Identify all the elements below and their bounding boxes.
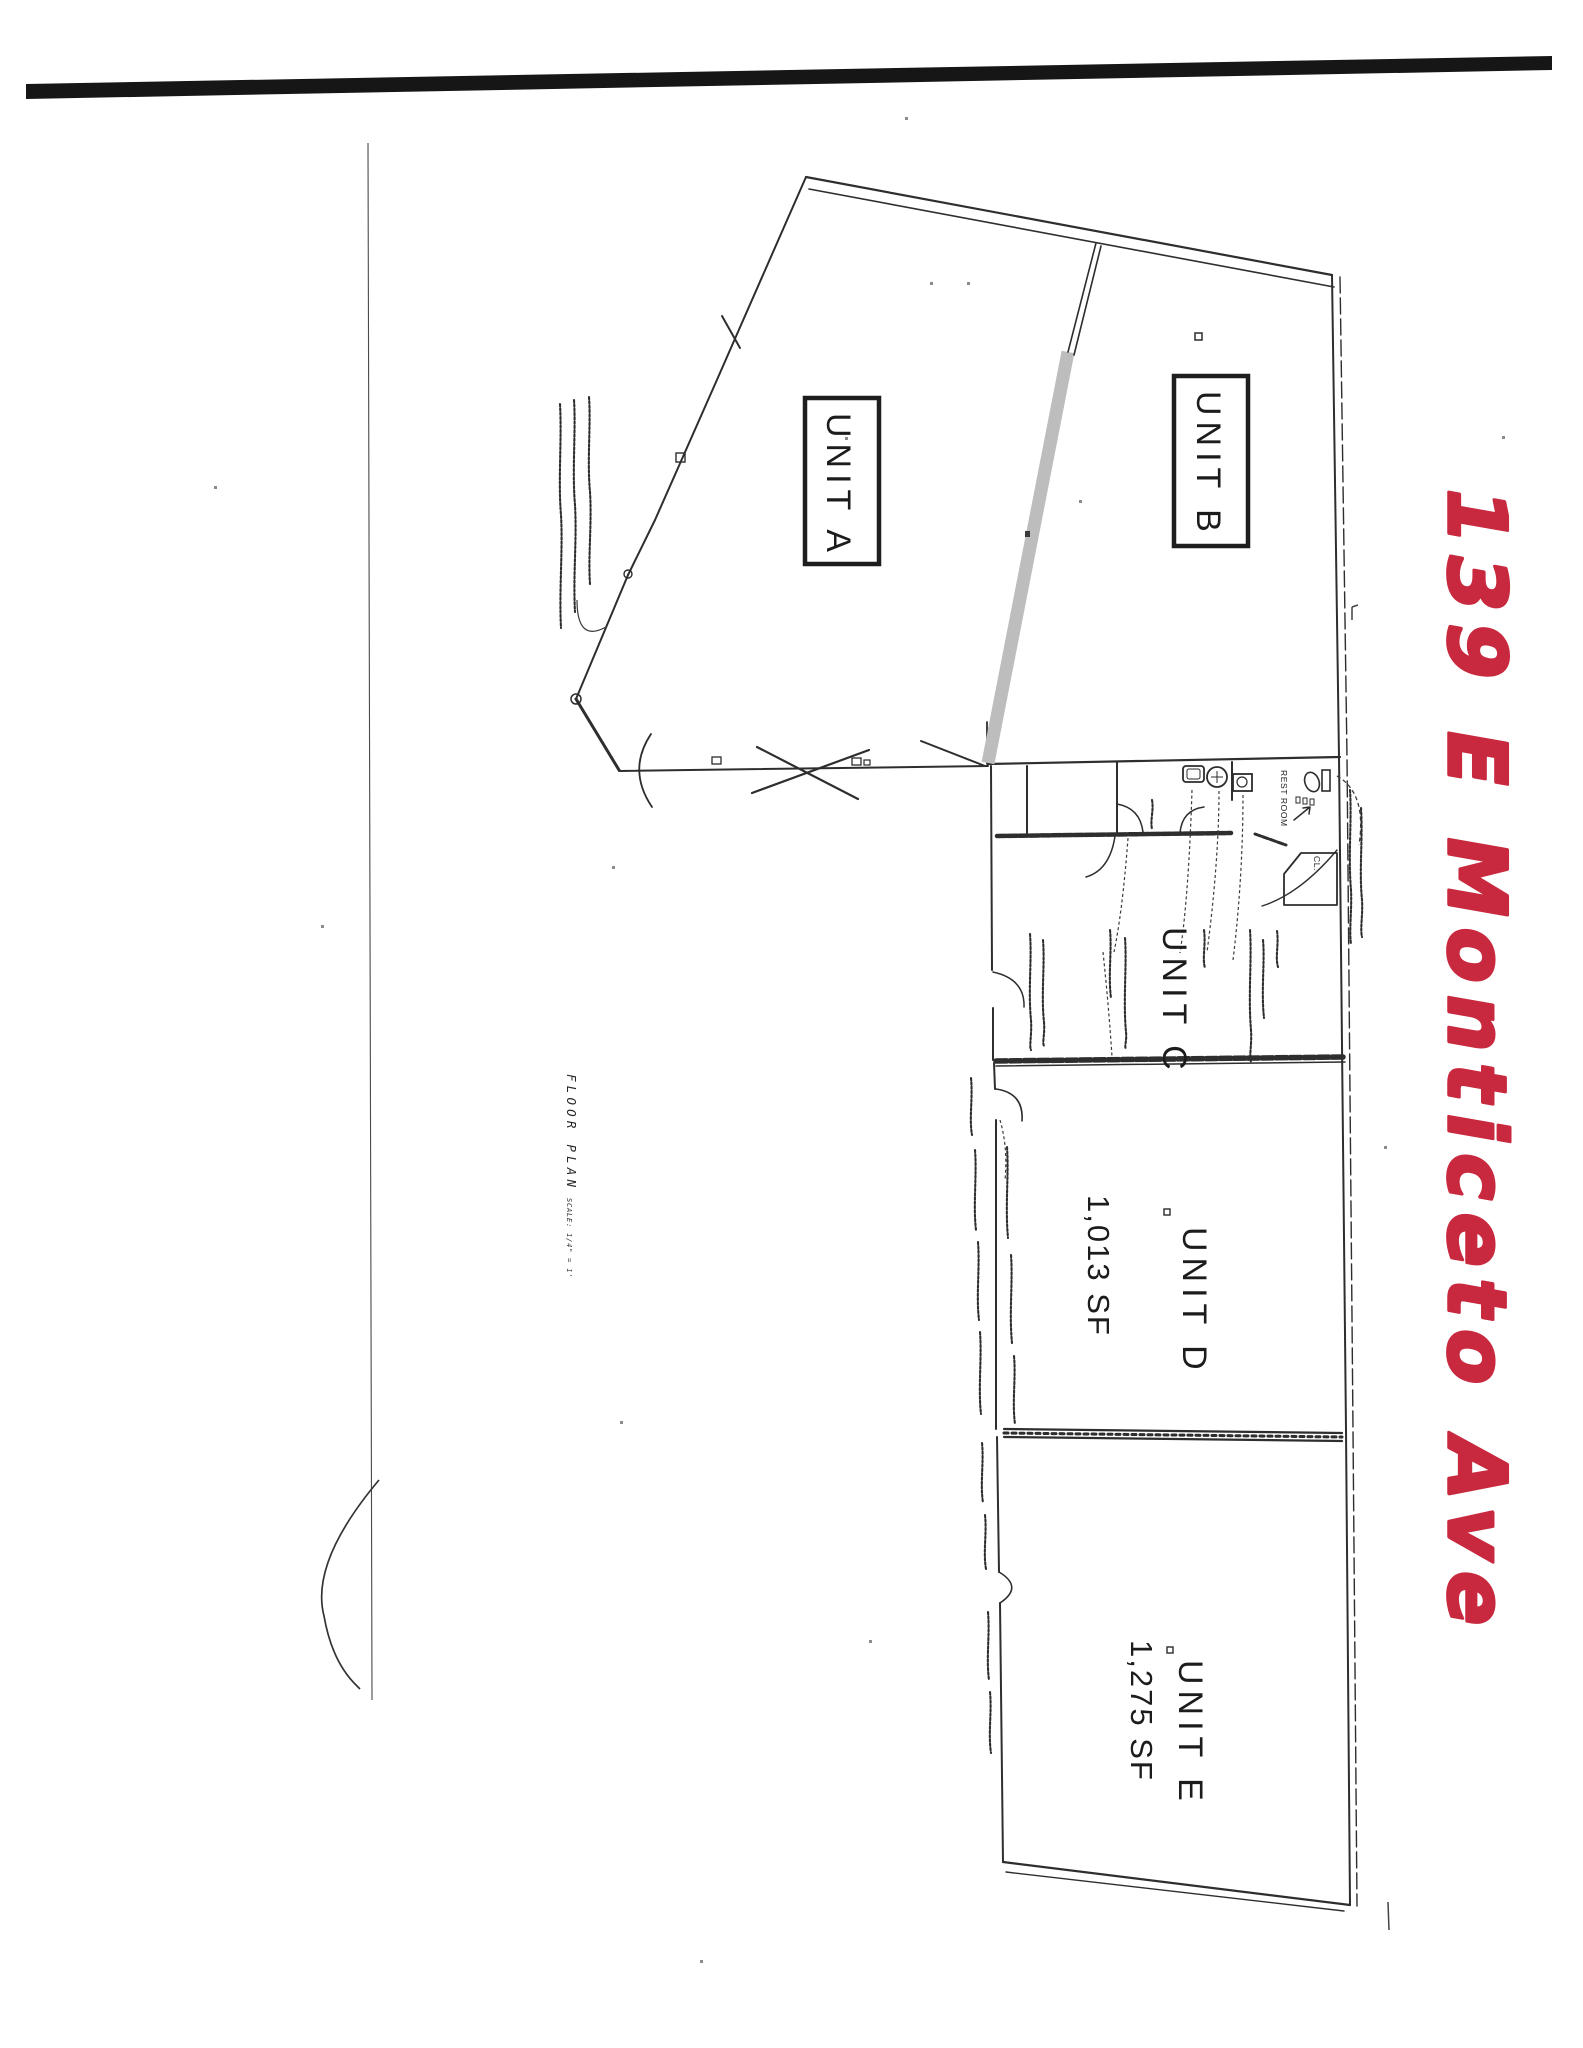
leader-line bbox=[1103, 952, 1112, 1057]
unit-e-bottom-wall bbox=[1003, 1862, 1350, 1905]
divider-dark-mark bbox=[1025, 531, 1030, 537]
unit-d-area-label: 1,013 SF bbox=[1081, 1195, 1116, 1337]
unit-d-label: UNIT D bbox=[1175, 1227, 1213, 1376]
unit-a-label: UNIT A bbox=[819, 413, 857, 558]
unit-a-b-divider-gray bbox=[988, 352, 1068, 763]
paper-holder bbox=[1310, 799, 1314, 805]
restroom-label: REST ROOM bbox=[1279, 770, 1289, 827]
leader-line bbox=[1000, 1120, 1006, 1180]
top-wall-inner bbox=[809, 189, 1334, 287]
top-wall bbox=[806, 177, 1332, 275]
restroom-strip-bottom-wall-2 bbox=[1255, 834, 1286, 845]
paper-holder bbox=[1303, 798, 1307, 804]
restroom-strip-top-wall bbox=[988, 757, 1340, 764]
annotation-scribble bbox=[980, 1332, 981, 1414]
leader-line bbox=[1233, 795, 1243, 960]
closet-bay bbox=[1284, 853, 1337, 905]
unit-d-marker-square bbox=[1164, 1209, 1170, 1215]
unit-c-door-swing-2 bbox=[993, 972, 1024, 1007]
annotation-scribble bbox=[1030, 934, 1031, 1050]
stray-tick bbox=[1388, 1902, 1389, 1930]
annotation-scribble bbox=[1361, 808, 1362, 937]
unit-a-corner-wall bbox=[576, 699, 619, 770]
unit-a-annotation-scribble bbox=[589, 397, 591, 584]
toilet-bowl bbox=[1302, 770, 1322, 794]
water-heater-dial bbox=[1237, 777, 1247, 787]
unit-a-annotation-scribble bbox=[560, 404, 562, 628]
paper-holder bbox=[1296, 797, 1300, 803]
right-outer-wall bbox=[1332, 275, 1350, 1905]
annotation-scribble bbox=[988, 1612, 989, 1680]
wall-fixture bbox=[712, 757, 721, 764]
leader-line bbox=[1207, 791, 1219, 952]
annotation-scribble bbox=[1125, 938, 1126, 1049]
unit-d-door-swing bbox=[996, 1089, 1022, 1121]
annotation-scribble bbox=[1277, 931, 1278, 967]
wall-fixture bbox=[852, 758, 861, 765]
scanned-floor-plan-page: UNIT A UNIT B UNIT C UNIT D 1,013 SF UNI… bbox=[0, 0, 1583, 2048]
annotation-scribble bbox=[982, 1443, 983, 1503]
unit-e-door-swing bbox=[999, 1572, 1012, 1603]
closet-door-swing bbox=[1262, 850, 1337, 906]
handwritten-address: 139 E Monticeto Ave bbox=[1429, 480, 1522, 1647]
floor-plan-drawing: UNIT A UNIT B UNIT C UNIT D 1,013 SF UNI… bbox=[0, 0, 1583, 2048]
annotation-scribble bbox=[1043, 940, 1044, 1046]
lavatory-cross bbox=[1211, 771, 1223, 783]
closet-label: CL. bbox=[1312, 856, 1322, 871]
annotation-scribble bbox=[990, 1692, 991, 1753]
fold-crease-curve bbox=[322, 1480, 379, 1689]
wall-fixture bbox=[864, 760, 870, 765]
unit-a-b-divider-thin bbox=[1068, 243, 1101, 355]
unit-e-marker-square bbox=[1167, 1647, 1173, 1653]
x-mark bbox=[752, 747, 869, 799]
annotation-scribble bbox=[985, 1515, 986, 1569]
annotation-scribble bbox=[975, 1150, 976, 1230]
annotation-scribble bbox=[1011, 1255, 1012, 1343]
restroom-strip-bottom-wall bbox=[997, 833, 1231, 836]
unit-c-label: UNIT C bbox=[1155, 927, 1193, 1076]
scan-artifacts bbox=[26, 56, 1552, 1963]
sink-fixture bbox=[1183, 766, 1204, 782]
annotation-scribble bbox=[1204, 930, 1205, 968]
junction-door-leaf bbox=[921, 741, 985, 766]
building-walls bbox=[576, 177, 1357, 1911]
unit-d-e-divider-hatch bbox=[1004, 1433, 1342, 1437]
toilet-tank bbox=[1322, 770, 1330, 791]
plan-details bbox=[571, 333, 1361, 1653]
annotation-scribble bbox=[1110, 930, 1111, 998]
unit-e-area-label: 1,275 SF bbox=[1124, 1640, 1159, 1782]
unit-e-left-wall bbox=[997, 1437, 1003, 1862]
annotation-scribble bbox=[1151, 800, 1152, 829]
annotation-scribble bbox=[1350, 790, 1351, 944]
annotation-scribble bbox=[1250, 930, 1251, 1062]
annotation-scribbles bbox=[560, 397, 1362, 1753]
unit-a-left-wall bbox=[576, 177, 806, 699]
page-fold-line bbox=[368, 143, 372, 1700]
unit-e-label: UNIT E bbox=[1171, 1660, 1209, 1807]
annotation-scribble bbox=[1007, 1147, 1008, 1238]
annotation-scribble bbox=[1014, 1356, 1015, 1424]
stray-tick bbox=[1352, 605, 1358, 620]
annotation-scribble bbox=[971, 1078, 972, 1135]
scale-note: SCALE: 1/4" = 1' bbox=[565, 1198, 573, 1278]
unit-b-label: UNIT B bbox=[1189, 391, 1227, 538]
plan-labels: UNIT A UNIT B UNIT C UNIT D 1,013 SF UNI… bbox=[564, 391, 1522, 1807]
strip-door-swing-1 bbox=[1117, 804, 1143, 832]
unit-a-annotation-leader bbox=[577, 600, 606, 631]
restroom-fixtures bbox=[1183, 766, 1330, 805]
unit-b-marker-square bbox=[1195, 333, 1202, 340]
toilet-arrow bbox=[1294, 807, 1310, 820]
drawing-title: FLOOR PLAN bbox=[564, 1074, 579, 1191]
unit-c-door-swing-1 bbox=[1086, 836, 1115, 877]
strip-door-swing-2 bbox=[1180, 807, 1204, 833]
sink-basin bbox=[1187, 769, 1200, 779]
scan-bar bbox=[26, 56, 1552, 99]
unit-e-bottom-wall-inner bbox=[1006, 1872, 1344, 1911]
leader-lines bbox=[577, 600, 1243, 1180]
annotation-scribble bbox=[1263, 940, 1264, 1018]
leader-line bbox=[1114, 838, 1128, 952]
unit-c-left-wall bbox=[991, 766, 993, 1060]
annotation-scribble bbox=[978, 1242, 979, 1320]
unit-a-annotation-scribble bbox=[574, 400, 576, 612]
